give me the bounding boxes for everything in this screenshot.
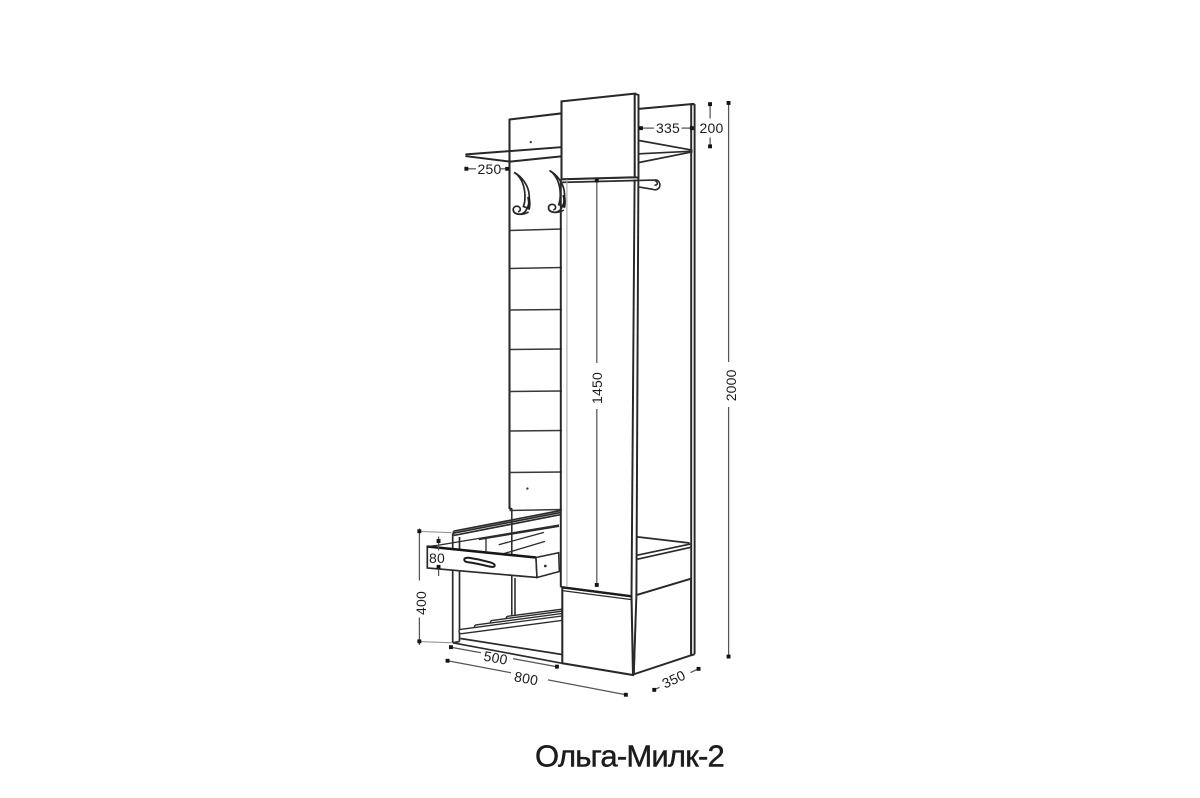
svg-text:335: 335 <box>656 120 680 136</box>
svg-text:400: 400 <box>413 591 429 615</box>
svg-text:1450: 1450 <box>589 372 605 404</box>
svg-text:2000: 2000 <box>723 369 739 401</box>
svg-text:80: 80 <box>429 550 445 566</box>
svg-text:250: 250 <box>478 161 502 177</box>
svg-text:200: 200 <box>700 120 724 136</box>
svg-text:Ольга-Милк-2: Ольга-Милк-2 <box>535 739 724 774</box>
